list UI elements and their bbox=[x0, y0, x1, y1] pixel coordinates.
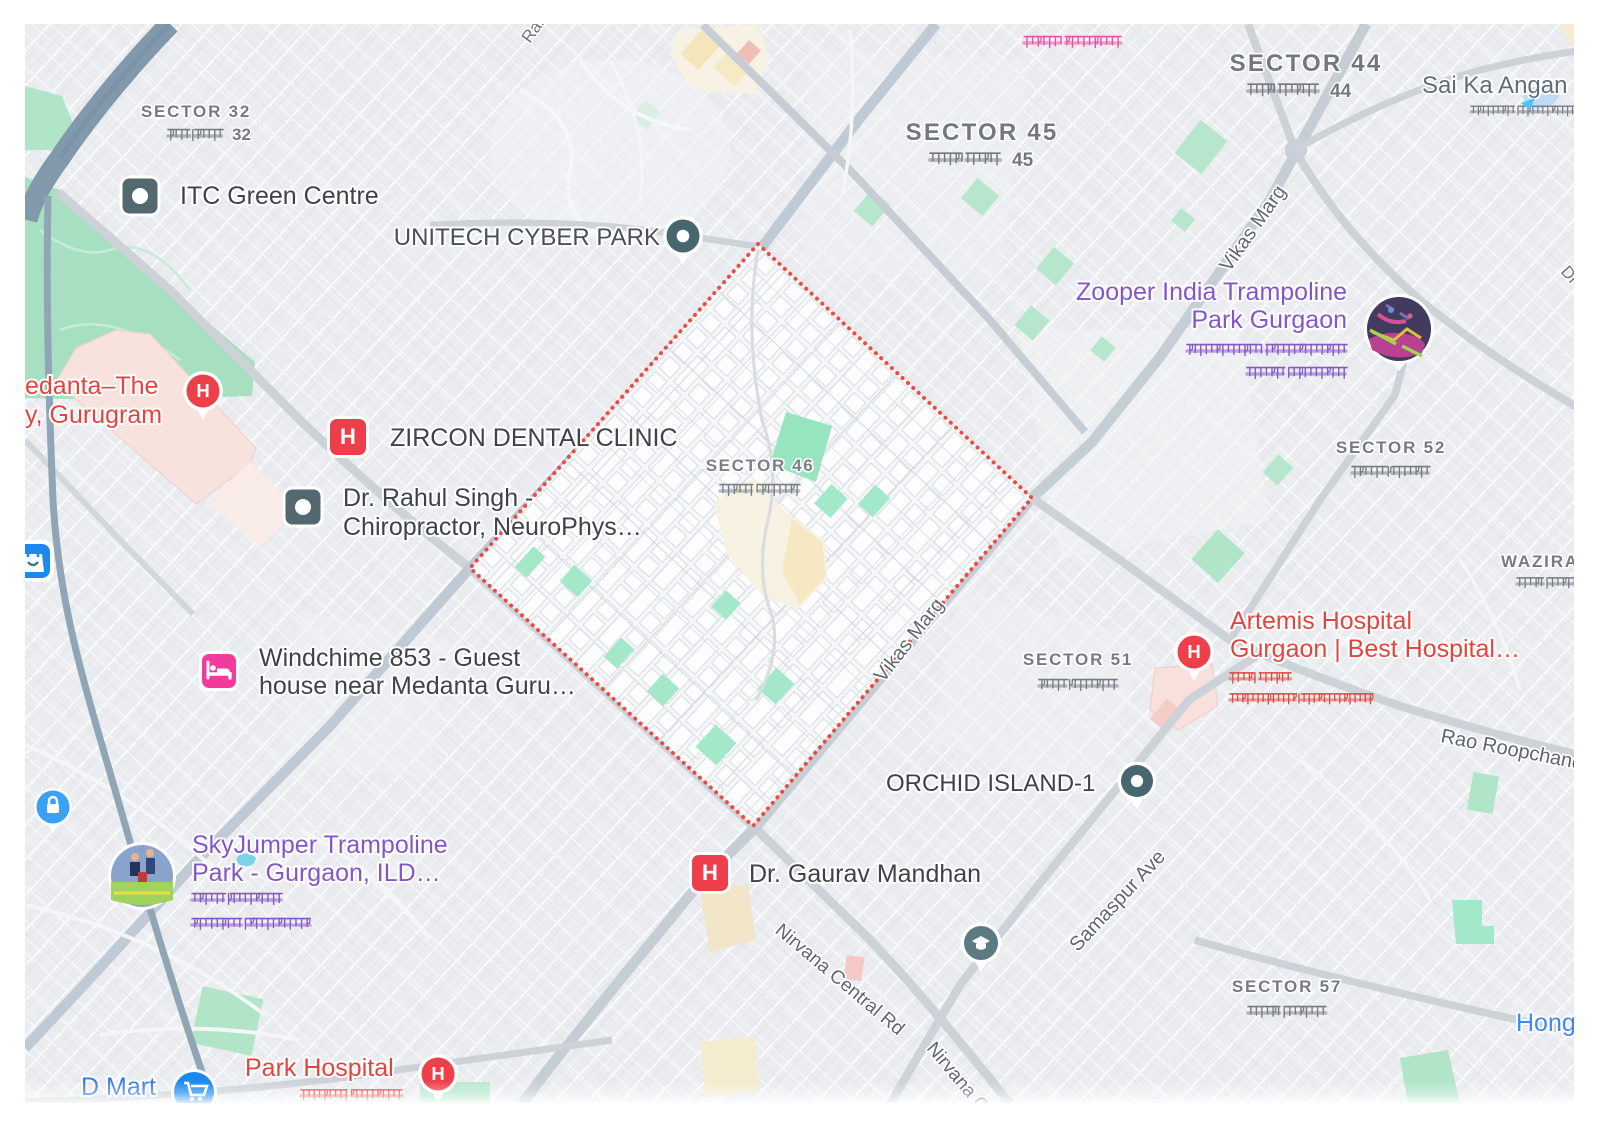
svg-text:Hong: Hong bbox=[1516, 1009, 1576, 1037]
svg-text:Park - Gurgaon, ILD…: Park - Gurgaon, ILD… bbox=[192, 859, 441, 887]
svg-text:Zooper India Trampoline: Zooper India Trampoline bbox=[1076, 278, 1347, 306]
svg-text:H: H bbox=[431, 1063, 444, 1084]
svg-text:SECTOR 44: SECTOR 44 bbox=[1230, 50, 1383, 77]
svg-text:WAZIRA: WAZIRA bbox=[1501, 552, 1579, 571]
svg-text:SECTOR 51: SECTOR 51 bbox=[1023, 650, 1133, 669]
svg-text:ORCHID ISLAND-1: ORCHID ISLAND-1 bbox=[886, 770, 1095, 797]
svg-text:45: 45 bbox=[1012, 150, 1034, 171]
svg-text:H: H bbox=[196, 380, 209, 401]
svg-text:SECTOR 46: SECTOR 46 bbox=[706, 456, 815, 475]
svg-text:44: 44 bbox=[1330, 81, 1352, 102]
svg-text:H: H bbox=[1187, 641, 1200, 662]
svg-text:SECTOR 52: SECTOR 52 bbox=[1336, 438, 1446, 457]
svg-text:Artemis Hospital: Artemis Hospital bbox=[1230, 607, 1412, 635]
svg-text:SECTOR 32: SECTOR 32 bbox=[141, 102, 251, 121]
svg-text:UNITECH CYBER PARK: UNITECH CYBER PARK bbox=[394, 224, 660, 251]
svg-text:y, Gurugram: y, Gurugram bbox=[25, 401, 162, 429]
svg-text:32: 32 bbox=[232, 125, 251, 144]
svg-text:Sai Ka Angan: Sai Ka Angan bbox=[1422, 72, 1567, 99]
svg-text:Windchime 853 - Guest: Windchime 853 - Guest bbox=[259, 644, 520, 672]
svg-text:H: H bbox=[702, 860, 718, 885]
svg-text:SECTOR 45: SECTOR 45 bbox=[906, 119, 1059, 146]
svg-text:SECTOR 57: SECTOR 57 bbox=[1232, 977, 1342, 996]
svg-text:Dr. Rahul Singh -: Dr. Rahul Singh - bbox=[343, 484, 533, 512]
svg-text:ZIRCON DENTAL CLINIC: ZIRCON DENTAL CLINIC bbox=[390, 424, 678, 452]
svg-text:SkyJumper Trampoline: SkyJumper Trampoline bbox=[192, 831, 448, 859]
svg-text:H: H bbox=[340, 424, 356, 449]
svg-text:Gurgaon | Best Hospital…: Gurgaon | Best Hospital… bbox=[1230, 635, 1520, 663]
svg-text:house near Medanta Guru…: house near Medanta Guru… bbox=[259, 672, 576, 700]
svg-text:Park Hospital: Park Hospital bbox=[245, 1054, 394, 1082]
svg-text:edanta–The: edanta–The bbox=[25, 372, 158, 400]
svg-text:Chiropractor, NeuroPhys…: Chiropractor, NeuroPhys… bbox=[343, 513, 642, 541]
svg-text:Park Gurgaon: Park Gurgaon bbox=[1191, 306, 1347, 334]
svg-text:ITC Green Centre: ITC Green Centre bbox=[180, 182, 379, 210]
svg-text:Dr. Gaurav Mandhan: Dr. Gaurav Mandhan bbox=[749, 860, 981, 888]
